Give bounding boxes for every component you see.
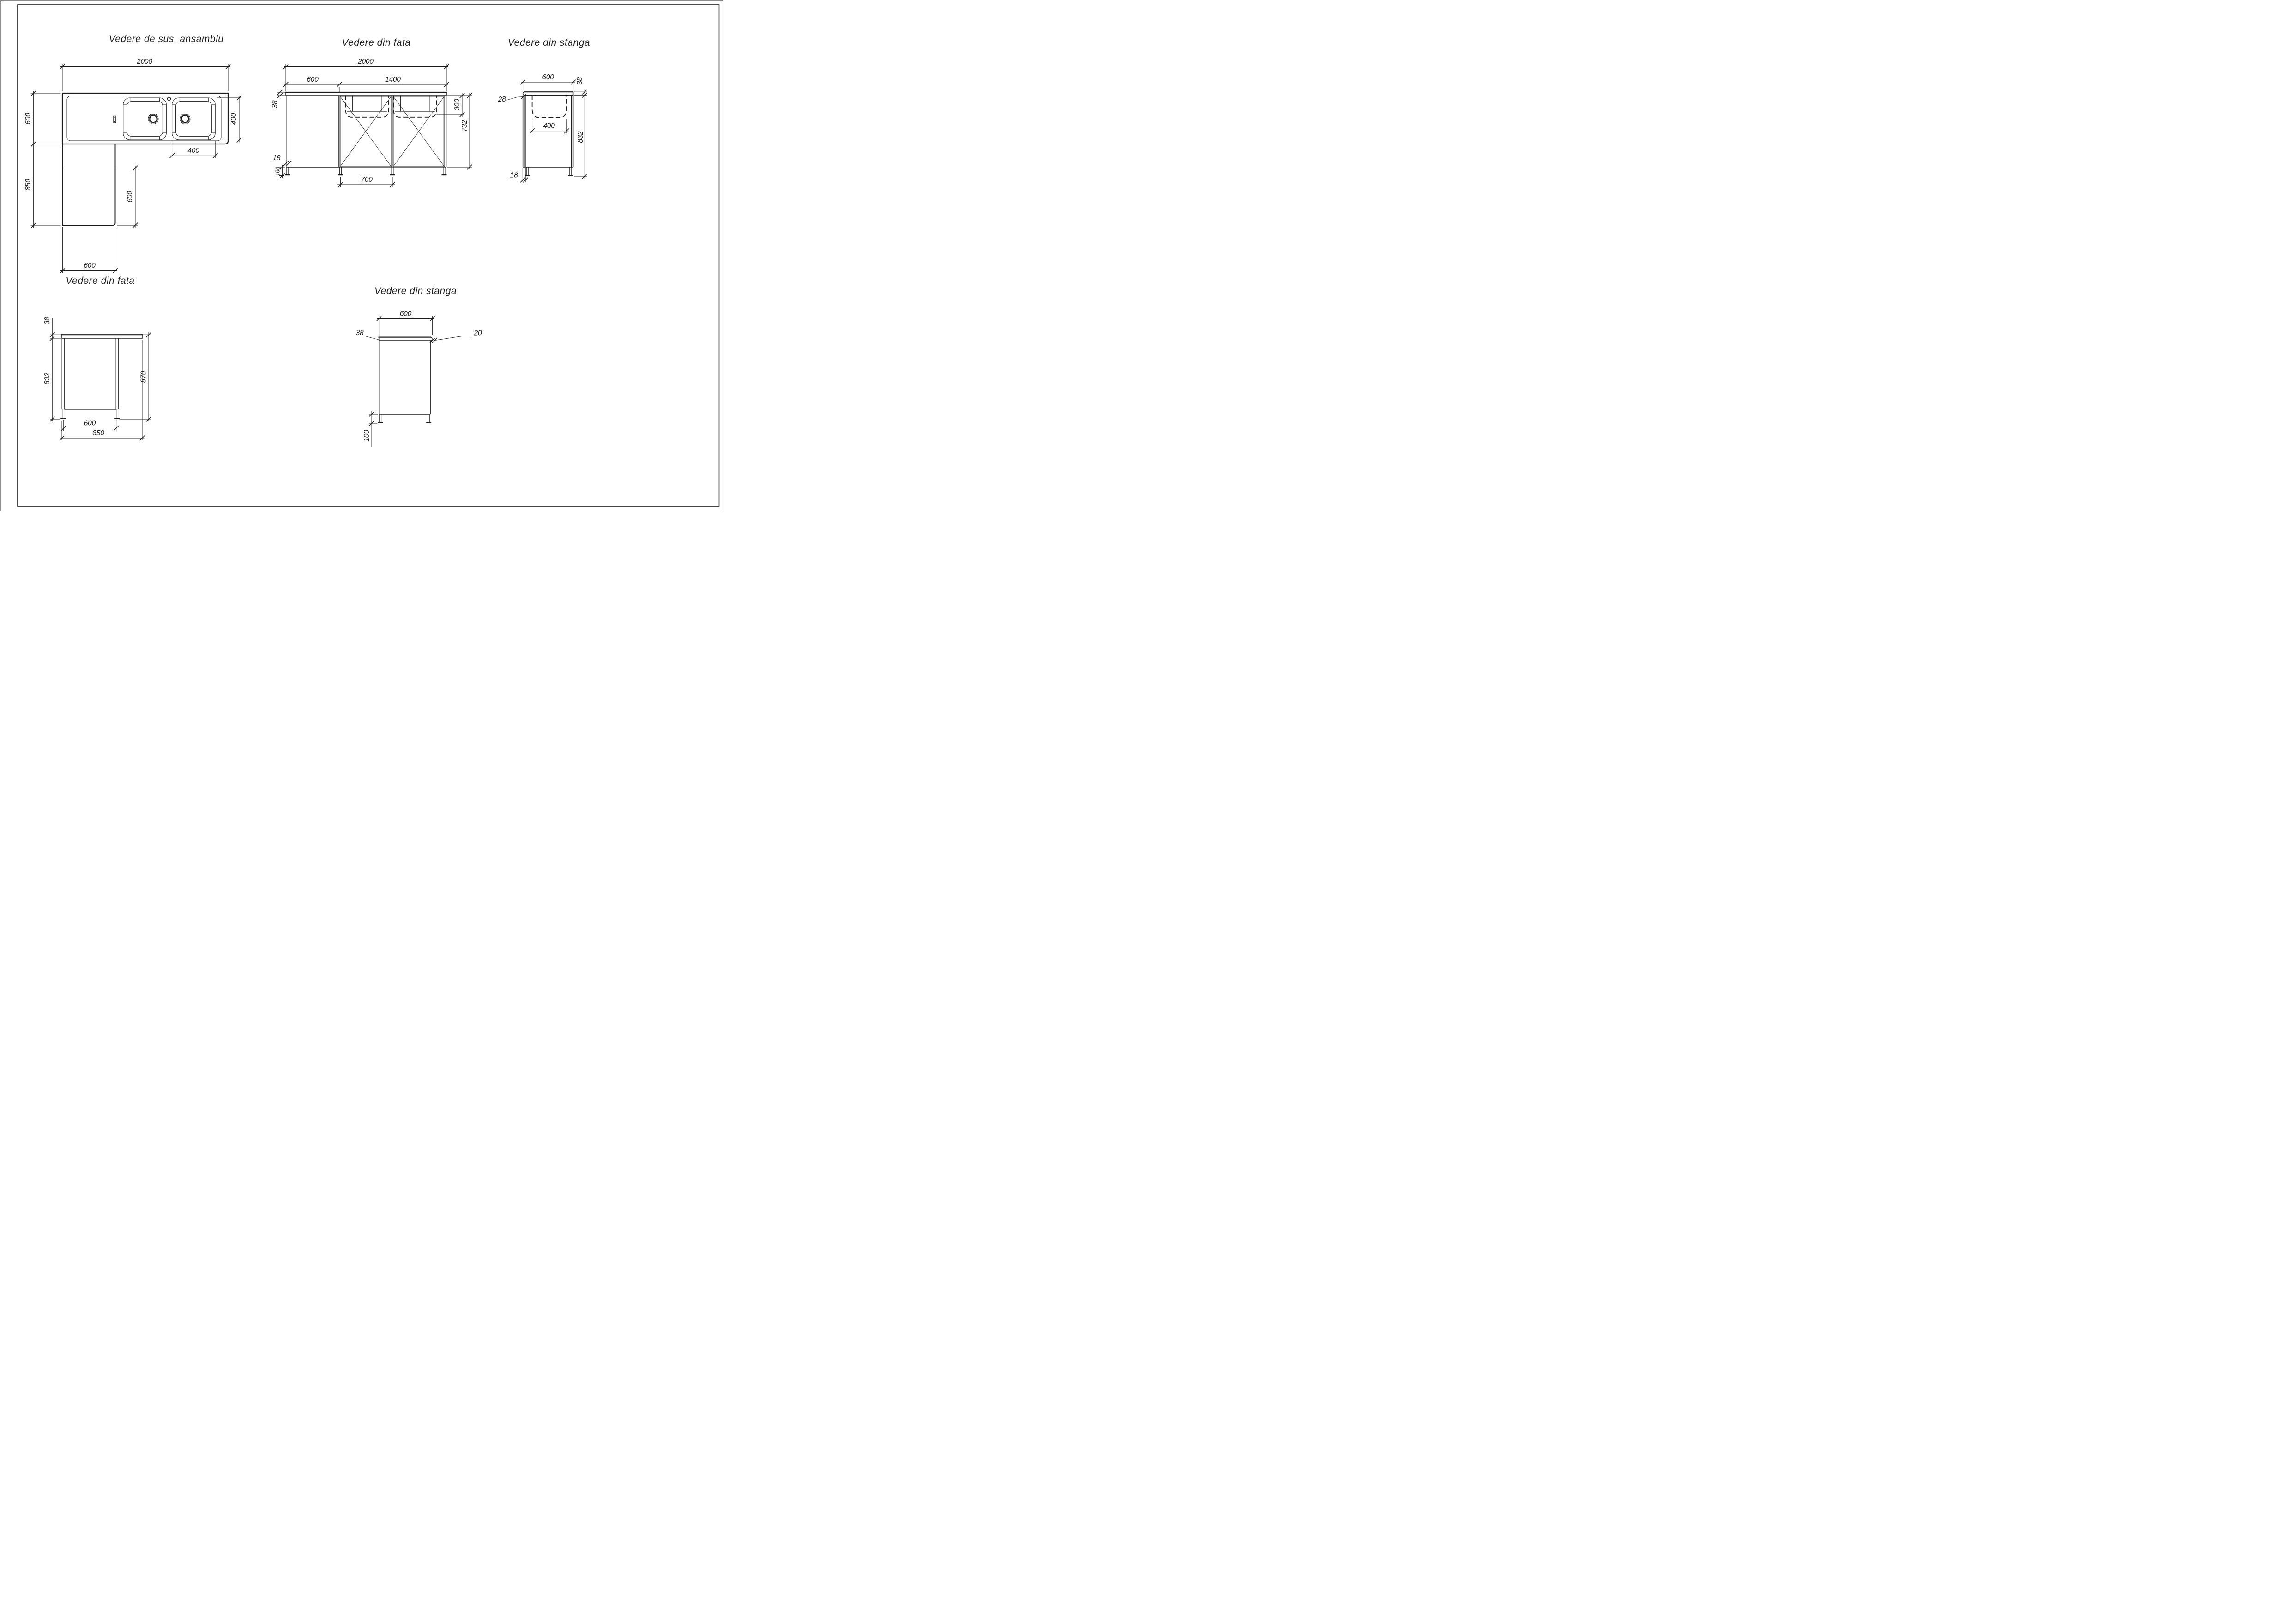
view-front-return: Vedere din fata 38 832 870 600 bbox=[43, 276, 151, 440]
return-cabinet-outline bbox=[63, 144, 115, 225]
svg-text:1400: 1400 bbox=[385, 76, 401, 84]
dim-top-width: 600 bbox=[377, 310, 435, 336]
cad-canvas: Vedere de sus, ansamblu bbox=[0, 0, 724, 511]
drain-right bbox=[180, 114, 190, 124]
svg-text:600: 600 bbox=[400, 310, 412, 318]
view-top-assembly: Vedere de sus, ansamblu bbox=[24, 34, 242, 273]
svg-text:870: 870 bbox=[140, 371, 148, 383]
svg-text:18: 18 bbox=[510, 172, 518, 180]
dim-return-inner: 600 bbox=[117, 166, 138, 228]
svg-text:400: 400 bbox=[543, 122, 555, 130]
svg-text:600: 600 bbox=[84, 262, 96, 270]
svg-text:600: 600 bbox=[542, 73, 554, 81]
svg-text:38: 38 bbox=[43, 317, 51, 324]
dim-inner-width: 600 bbox=[61, 420, 119, 431]
svg-text:38: 38 bbox=[356, 329, 364, 337]
legs bbox=[378, 414, 431, 423]
dim-countertop-thickness: 38 bbox=[271, 90, 285, 108]
view-title: Vedere din fata bbox=[342, 37, 410, 48]
sink-rim-outline bbox=[67, 96, 221, 141]
dim-counter-depth: 600 bbox=[520, 73, 575, 90]
legs bbox=[525, 167, 573, 176]
svg-text:732: 732 bbox=[461, 120, 469, 132]
dim-600-1400: 600 1400 bbox=[283, 76, 449, 92]
hidden-bowl-right bbox=[394, 96, 437, 117]
view-title: Vedere din fata bbox=[66, 276, 134, 286]
dim-panel-thickness: 18 bbox=[270, 154, 292, 166]
dim-body-height: 832 bbox=[43, 372, 60, 421]
svg-text:2000: 2000 bbox=[136, 58, 152, 66]
dim-counter-depth: 600 850 bbox=[24, 91, 61, 228]
door-left bbox=[340, 96, 392, 167]
dim-total-height: 870 bbox=[120, 332, 151, 421]
dim-leg-height: 100 bbox=[275, 165, 285, 178]
svg-text:832: 832 bbox=[577, 131, 585, 143]
dim-body-height: 832 bbox=[574, 131, 587, 179]
svg-text:18: 18 bbox=[273, 154, 281, 162]
sink-bowl-right bbox=[172, 98, 216, 140]
top-slab bbox=[379, 337, 432, 341]
legs bbox=[285, 167, 446, 175]
svg-text:300: 300 bbox=[453, 99, 461, 111]
dim-door-width: 700 bbox=[337, 176, 395, 187]
dim-bowl-width: 400 bbox=[530, 119, 569, 133]
body-outline bbox=[379, 341, 431, 414]
svg-text:38: 38 bbox=[576, 77, 584, 85]
svg-text:38: 38 bbox=[271, 100, 279, 108]
view-front-assembly: Vedere din fata bbox=[270, 37, 472, 187]
dim-countertop-thickness: 38 bbox=[43, 317, 61, 421]
dim-overall-width: 2000 bbox=[283, 58, 449, 91]
hidden-bowl bbox=[532, 95, 567, 118]
cabinet-box bbox=[286, 96, 446, 167]
callout-edge-thickness: 20 bbox=[430, 330, 482, 343]
door-right bbox=[393, 96, 445, 167]
top-slab bbox=[62, 335, 142, 338]
dim-return-width: 600 bbox=[60, 227, 117, 273]
sink-bowl-left bbox=[123, 98, 167, 140]
svg-text:100: 100 bbox=[363, 430, 371, 442]
view-title: Vedere de sus, ansamblu bbox=[109, 34, 224, 44]
dim-overall-width: 850 bbox=[60, 340, 145, 440]
side-panels bbox=[62, 338, 118, 409]
front-door-edge bbox=[523, 95, 525, 167]
dim-overall-width: 2000 bbox=[60, 58, 230, 91]
svg-text:600: 600 bbox=[24, 113, 32, 125]
legs bbox=[60, 409, 120, 419]
svg-text:400: 400 bbox=[230, 113, 238, 125]
svg-text:600: 600 bbox=[307, 76, 319, 84]
view-title: Vedere din stanga bbox=[374, 286, 457, 296]
callout-front-panel: 28 bbox=[498, 94, 526, 103]
left-side-panel bbox=[286, 96, 289, 167]
svg-text:28: 28 bbox=[498, 96, 506, 103]
view-title: Vedere din stanga bbox=[508, 37, 590, 48]
drawing-sheet: Vedere de sus, ansamblu bbox=[0, 0, 724, 511]
svg-text:2000: 2000 bbox=[357, 58, 374, 66]
hidden-bowl-left bbox=[346, 96, 389, 117]
page-outer-edge bbox=[1, 1, 723, 511]
svg-text:400: 400 bbox=[187, 147, 199, 155]
svg-text:832: 832 bbox=[43, 372, 51, 384]
svg-text:850: 850 bbox=[92, 429, 104, 437]
svg-text:600: 600 bbox=[84, 420, 96, 427]
svg-text:700: 700 bbox=[361, 176, 373, 184]
dim-leg-height: 100 bbox=[363, 411, 378, 447]
faucet-hole bbox=[168, 97, 171, 101]
dim-countertop-thickness: 38 bbox=[574, 77, 587, 179]
drain-left bbox=[148, 114, 158, 124]
svg-text:600: 600 bbox=[126, 191, 134, 203]
callout-countertop-thickness: 38 bbox=[355, 329, 379, 340]
svg-text:850: 850 bbox=[24, 179, 32, 191]
svg-text:20: 20 bbox=[474, 330, 482, 337]
svg-text:100: 100 bbox=[275, 167, 281, 176]
overflow-slot bbox=[114, 116, 116, 123]
view-left-assembly: Vedere din stanga 600 38 832 bbox=[498, 37, 591, 182]
view-left-return: Vedere din stanga 600 38 20 100 bbox=[355, 286, 482, 447]
dim-sink-module-depth: 400 bbox=[217, 96, 241, 143]
